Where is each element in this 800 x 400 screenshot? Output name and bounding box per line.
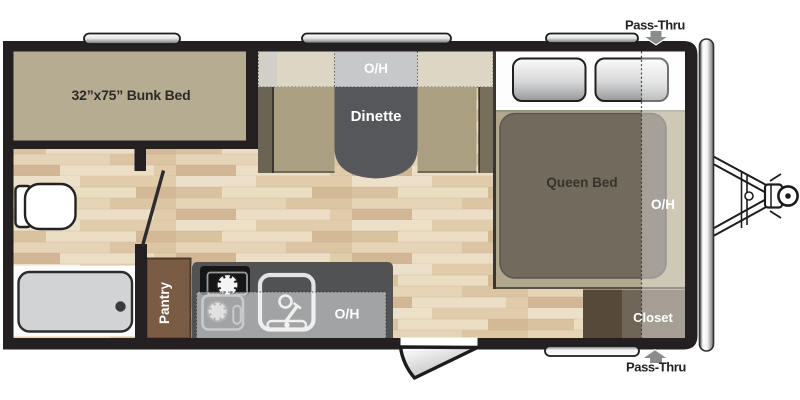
svg-text:Queen Bed: Queen Bed [546,175,617,190]
svg-text:Pass-Thru: Pass-Thru [626,360,686,375]
svg-text:Dinette: Dinette [351,108,402,125]
svg-text:O/H: O/H [364,61,388,76]
svg-text:O/H: O/H [335,306,360,322]
svg-text:O/H: O/H [651,197,675,212]
svg-text:Pantry: Pantry [157,282,172,325]
svg-text:32”x75” Bunk Bed: 32”x75” Bunk Bed [72,87,191,103]
